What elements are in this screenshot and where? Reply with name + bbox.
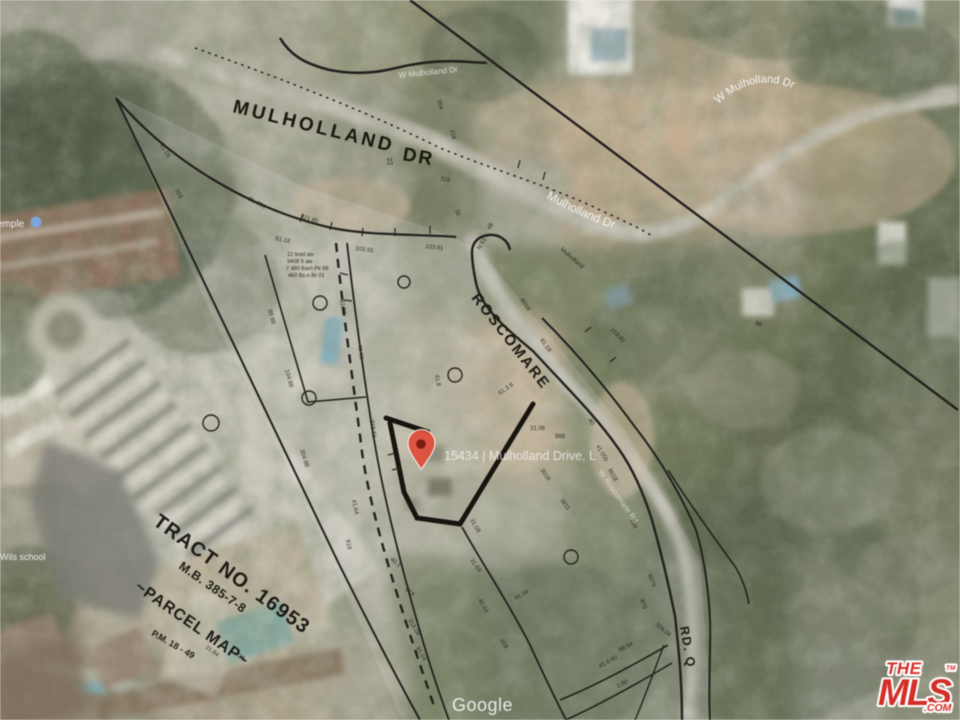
svg-text:.COM: .COM xyxy=(924,702,952,714)
svg-text:9408 5 aw: 9408 5 aw xyxy=(287,259,312,265)
svg-text:12 lead aw: 12 lead aw xyxy=(287,252,314,258)
svg-text:22: 22 xyxy=(385,157,393,166)
svg-text:7 480 Barn Pk 88: 7 480 Barn Pk 88 xyxy=(286,266,329,272)
svg-text:Google: Google xyxy=(452,695,513,715)
svg-text:868: 868 xyxy=(555,434,566,440)
svg-text:Wils school: Wils school xyxy=(0,552,46,562)
svg-text:emple: emple xyxy=(0,219,25,230)
svg-text:15434 | Mulholland Drive, L: 15434 | Mulholland Drive, L xyxy=(444,449,596,463)
svg-text:TM: TM xyxy=(946,665,956,672)
svg-text:460 8a-n.8v 01: 460 8a-n.8v 01 xyxy=(288,273,325,279)
svg-text:31.08: 31.08 xyxy=(530,426,546,432)
